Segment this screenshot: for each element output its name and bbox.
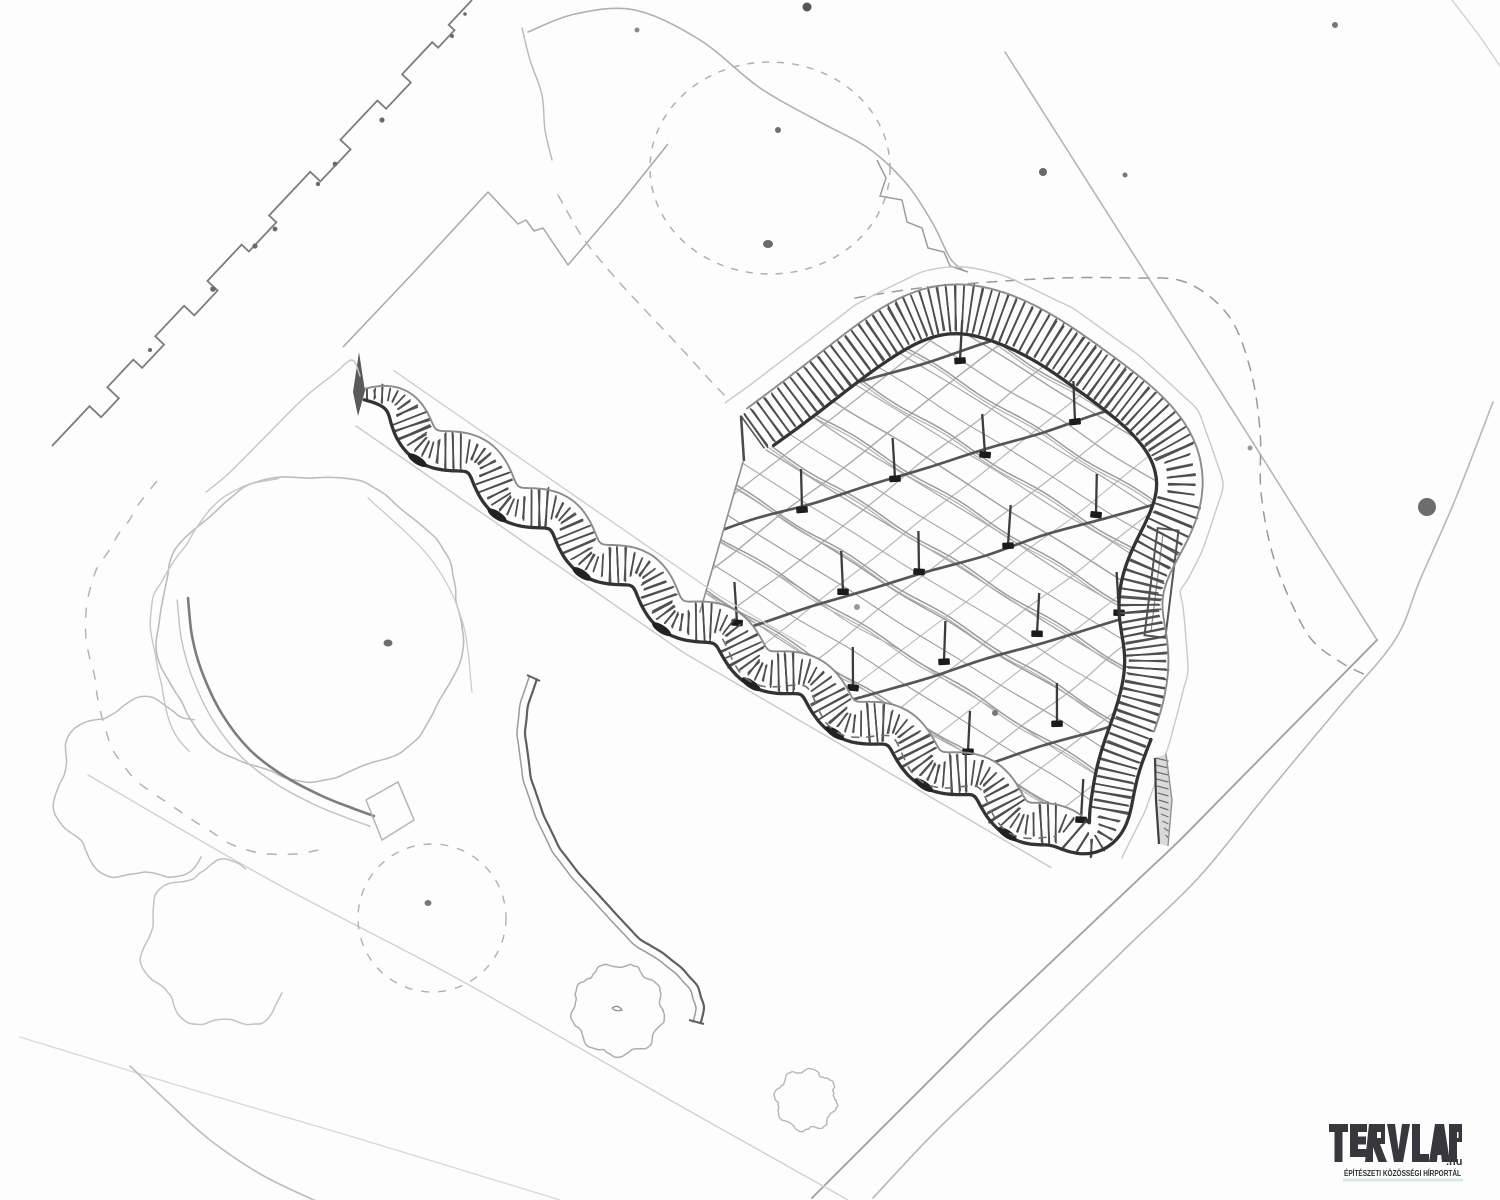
svg-text:ÉPÍTÉSZETI KÖZÖSSÉGI HÍRPORTÁL: ÉPÍTÉSZETI KÖZÖSSÉGI HÍRPORTÁL bbox=[1344, 1169, 1461, 1178]
svg-text:.hu: .hu bbox=[1446, 1156, 1463, 1168]
